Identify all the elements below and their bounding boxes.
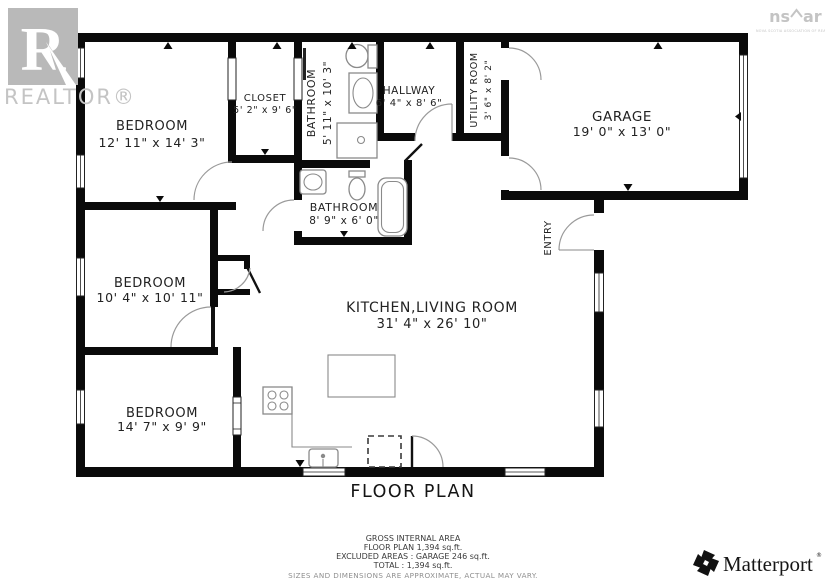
window: [77, 258, 85, 296]
shower-icon: [337, 123, 377, 158]
plan-title: FLOOR PLAN: [350, 482, 475, 502]
room-dims-garage: 19' 0" x 13' 0": [573, 124, 671, 139]
room-dims-bedroom2: 10' 4" x 10' 11": [97, 290, 204, 305]
house-icon: [791, 10, 802, 17]
counter-edge: [292, 387, 352, 447]
room-label-bathroom-top: BATHROOM: [305, 69, 318, 137]
window: [505, 468, 545, 476]
room-dims-bedroom1: 12' 11" x 14' 3": [99, 135, 206, 150]
footer-excluded-area: EXCLUDED AREAS : GARAGE 246 sq.ft.: [336, 552, 490, 561]
appliance-space: [368, 436, 401, 467]
room-dims-hallway: 6' 4" x 8' 6": [376, 98, 443, 109]
room-dims-utility: 3' 6" x 8' 2": [484, 60, 494, 121]
room-label-kitchen-living: KITCHEN,LIVING ROOM: [346, 300, 518, 316]
room-label-bedroom1: BEDROOM: [116, 119, 188, 134]
window: [303, 468, 345, 476]
room-label-bedroom2: BEDROOM: [114, 276, 186, 291]
nsar-logo-part2: ar: [803, 7, 822, 26]
room-dims-bathroom-mid: 8' 9" x 6' 0": [309, 215, 379, 227]
footer-floorplan-area: FLOOR PLAN 1,394 sq.ft.: [364, 543, 463, 552]
window: [595, 273, 604, 312]
footer-gross-area: GROSS INTERNAL AREA: [366, 534, 461, 543]
room-label-garage: GARAGE: [592, 109, 652, 125]
stove-icon: [263, 387, 292, 414]
kitchen-sink-icon: [309, 449, 338, 467]
door-opening: [294, 58, 302, 100]
matterport-pinwheel-icon: [693, 550, 719, 576]
nsar-logo-part1: ns: [769, 7, 790, 26]
room-dims-closet: 5' 2" x 9' 6": [233, 105, 297, 116]
door-opening: [233, 397, 241, 435]
room-dims-bedroom3: 14' 7" x 9' 9": [117, 419, 207, 434]
realtor-logo: R REALTOR®: [4, 8, 136, 109]
nsar-logo-subtext: NOVA SCOTIA ASSOCIATION OF REALTORS: [756, 29, 825, 33]
washer-icon: [349, 73, 377, 113]
sink-icon: [300, 170, 326, 194]
room-dims-bathroom-top: 5' 11" x 10' 3": [322, 61, 334, 145]
door-opening: [228, 58, 236, 100]
room-label-utility: UTILITY ROOM: [469, 52, 480, 127]
room-label-closet: CLOSET: [244, 93, 287, 104]
room-label-entry: ENTRY: [543, 220, 554, 256]
footer-total-area: TOTAL : 1,394 sq.ft.: [373, 561, 453, 570]
room-label-bathroom-mid: BATHROOM: [310, 201, 378, 214]
nsar-logo: ns ar NOVA SCOTIA ASSOCIATION OF REALTOR…: [756, 7, 825, 33]
matterport-logo: Matterport ®: [693, 550, 822, 576]
floor-plan-page: BEDROOM 12' 11" x 14' 3" CLOSET 5' 2" x …: [0, 0, 825, 583]
toilet-icon: [349, 171, 365, 200]
footer-disclaimer: SIZES AND DIMENSIONS ARE APPROXIMATE, AC…: [288, 571, 538, 580]
window: [77, 155, 85, 188]
window: [77, 390, 85, 424]
room-label-hallway: HALLWAY: [383, 85, 436, 97]
matterport-logo-mark: ®: [816, 552, 822, 559]
room-dims-kitchen-living: 31' 4" x 26' 10": [377, 317, 488, 332]
footer: GROSS INTERNAL AREA FLOOR PLAN 1,394 sq.…: [288, 534, 538, 580]
island: [328, 355, 395, 397]
floor-plan-canvas: BEDROOM 12' 11" x 14' 3" CLOSET 5' 2" x …: [0, 0, 825, 583]
bathtub-icon: [378, 178, 407, 236]
realtor-logo-label: REALTOR®: [4, 85, 136, 109]
window: [595, 390, 604, 427]
matterport-logo-label: Matterport: [723, 552, 813, 576]
